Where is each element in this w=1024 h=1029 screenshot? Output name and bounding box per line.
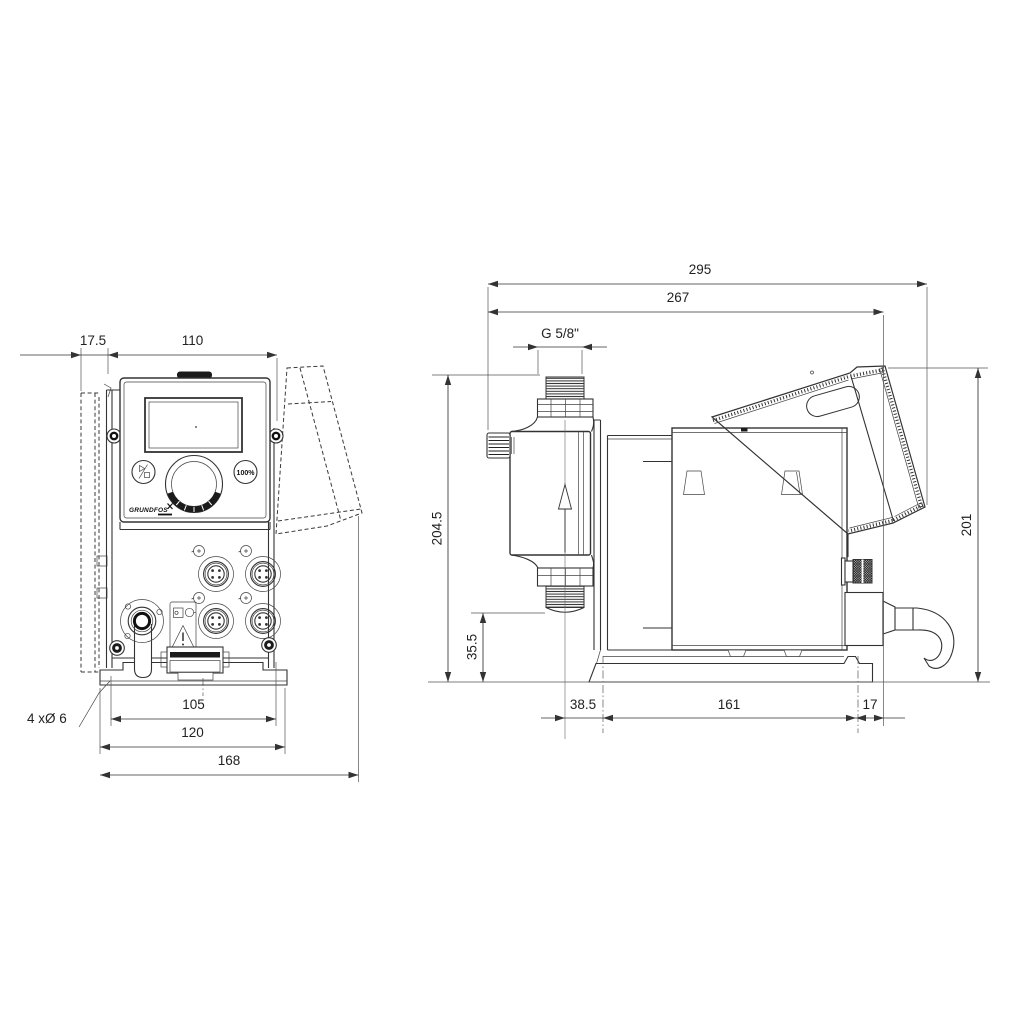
dim-label: 35.5 [465, 634, 480, 660]
dim-label: 17.5 [80, 333, 106, 348]
cable-strain-relief [845, 593, 954, 669]
dosing-head [487, 377, 594, 739]
air-vent-knob [487, 433, 514, 458]
m12-connector [192, 546, 234, 592]
technical-drawing-page: 100% GRUNDFOS [0, 0, 1024, 1024]
start-stop-button [132, 461, 155, 484]
front-view: 100% GRUNDFOS [20, 333, 362, 782]
motor-housing [672, 428, 847, 650]
inlet-thread [546, 377, 584, 399]
click-wheel [166, 456, 223, 513]
dim-label: 168 [218, 753, 241, 768]
port-icon [239, 546, 252, 557]
mounting-base-front [100, 647, 287, 696]
holes-note-label: 4 xØ 6 [27, 711, 67, 726]
port-icon [192, 546, 205, 557]
pump-housing-front [608, 436, 673, 651]
dim-label: 120 [181, 725, 204, 740]
m12-connector [192, 593, 234, 639]
corner-screw [262, 638, 277, 653]
port-icon [239, 593, 252, 604]
dimension-thread: G 5/8" [513, 326, 607, 374]
hundred-percent-label: 100% [237, 470, 256, 477]
base-side [589, 650, 873, 682]
dimension-161: 161 [718, 697, 856, 721]
mounting-holes-note: 4 xØ 6 [27, 681, 110, 727]
panel-screw-left [107, 429, 121, 443]
hood-open-front [276, 366, 362, 534]
head-bracket [594, 420, 601, 664]
dim-label: 267 [667, 290, 690, 305]
control-panel: 100% GRUNDFOS [120, 372, 270, 530]
dim-label: 204.5 [430, 512, 445, 546]
side-view: 295 267 G 5/8" 204.5 [428, 262, 990, 739]
logo-text: GRUNDFOS [129, 507, 168, 514]
power-cable-side [917, 608, 954, 668]
dimension-35-5: 35.5 [465, 613, 546, 682]
pump-dimensional-drawing: 100% GRUNDFOS [0, 0, 1024, 1024]
dim-label: 295 [689, 262, 712, 277]
cable-gland-rear [842, 558, 873, 585]
lcd-display [145, 398, 242, 452]
clip-tab [684, 471, 705, 495]
dim-label: 105 [182, 697, 205, 712]
dimension-17: 17 [856, 697, 884, 721]
dim-label: 161 [718, 697, 741, 712]
corner-screw [110, 641, 125, 656]
panel-screw-right [269, 429, 283, 443]
dim-label: G 5/8" [541, 326, 579, 341]
dim-label: 38.5 [570, 697, 596, 712]
hood-handle [804, 384, 862, 419]
dim-label: 17 [862, 697, 877, 712]
dim-label: 110 [182, 333, 204, 348]
hundred-percent-button: 100% [234, 461, 257, 484]
dim-label: 201 [959, 514, 974, 537]
connector-ports [192, 546, 281, 639]
